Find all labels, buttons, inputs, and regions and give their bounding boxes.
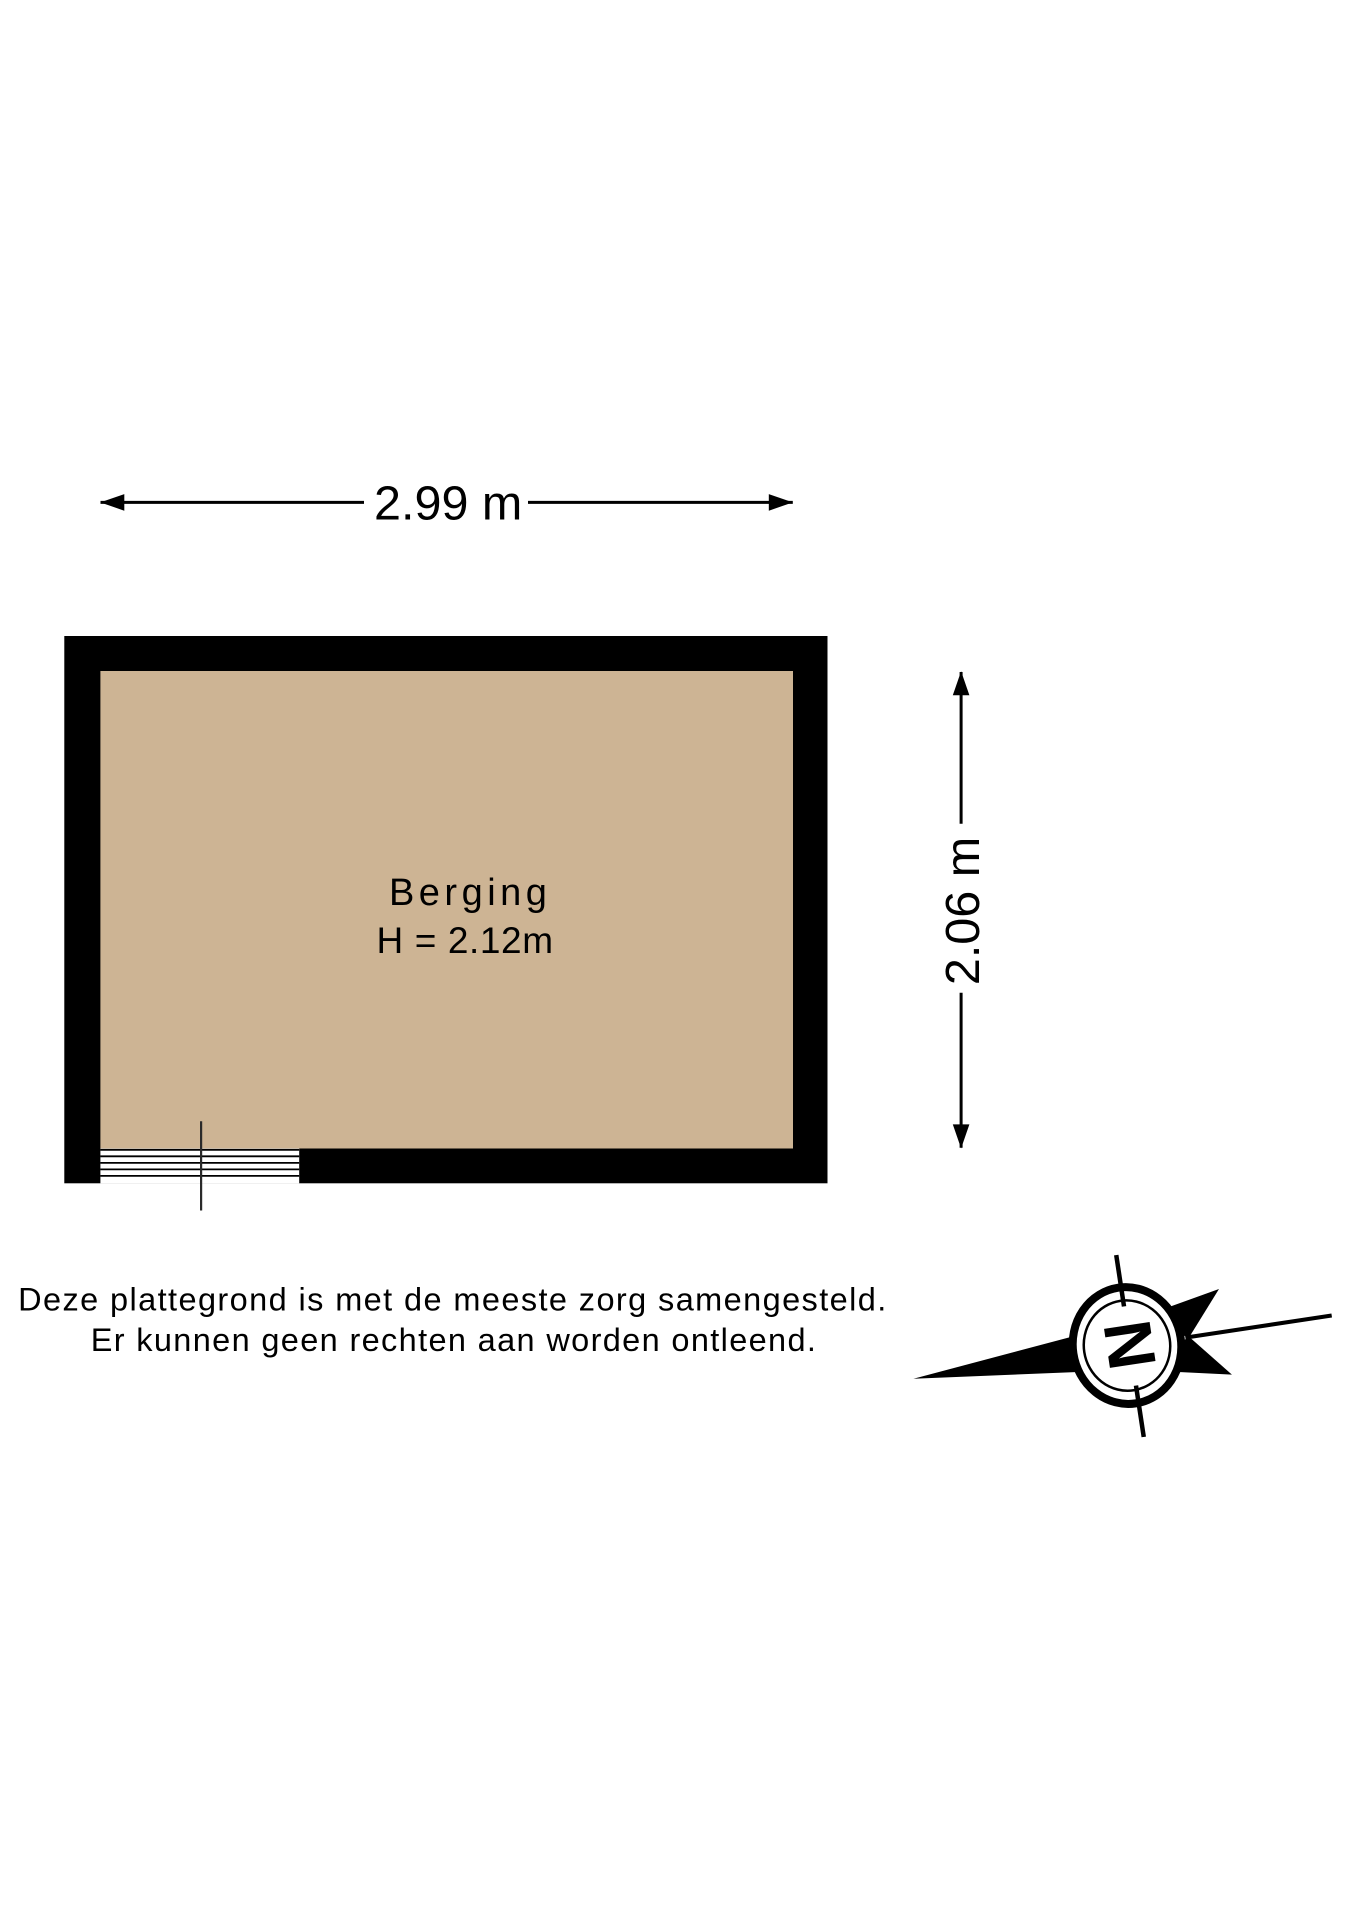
svg-text:2.06 m: 2.06 m [936, 837, 990, 985]
svg-text:Deze plattegrond is met de mee: Deze plattegrond is met de meeste zorg s… [18, 1282, 887, 1318]
svg-text:Berging: Berging [389, 872, 551, 914]
svg-text:H = 2.12m: H = 2.12m [377, 920, 554, 961]
svg-text:2.99 m: 2.99 m [374, 477, 522, 531]
svg-text:Er kunnen geen rechten aan wor: Er kunnen geen rechten aan worden ontlee… [91, 1322, 818, 1358]
